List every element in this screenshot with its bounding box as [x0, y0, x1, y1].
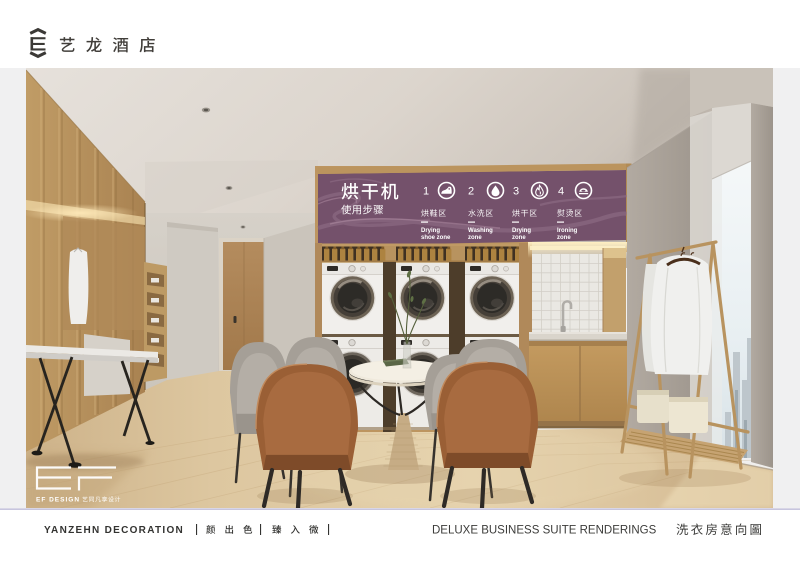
svg-text:Drying: Drying — [421, 228, 440, 234]
svg-text:Ironing: Ironing — [557, 228, 578, 234]
svg-text:zone: zone — [557, 235, 571, 241]
svg-text:EF DESIGN: EF DESIGN — [36, 497, 80, 504]
svg-text:zone: zone — [468, 235, 482, 241]
svg-text:1: 1 — [423, 186, 429, 198]
svg-text:YANZEHN DECORATION: YANZEHN DECORATION — [44, 525, 184, 536]
svg-text:shoe zone: shoe zone — [421, 235, 451, 241]
svg-text:3: 3 — [513, 186, 519, 198]
svg-text:zone: zone — [512, 235, 526, 241]
svg-text:DELUXE BUSINESS SUITE RENDERIN: DELUXE BUSINESS SUITE RENDERINGS — [432, 525, 657, 537]
svg-text:2: 2 — [468, 186, 474, 198]
svg-text:4: 4 — [558, 186, 564, 198]
svg-text:Drying: Drying — [512, 228, 531, 234]
svg-text:Washing: Washing — [468, 228, 493, 234]
